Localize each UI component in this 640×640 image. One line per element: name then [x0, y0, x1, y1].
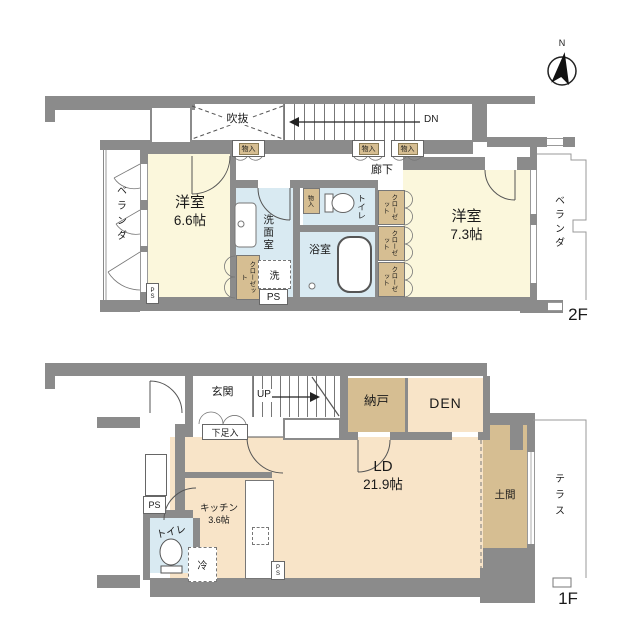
- ps-label: PS: [148, 500, 160, 510]
- terrace-label: テラス: [551, 462, 564, 532]
- toilet-fixture-1f: [160, 539, 182, 573]
- ps-chip-kitchen: PS: [271, 561, 285, 580]
- door-arc-bedroom-6-6: [192, 156, 230, 194]
- door-arc-ld: [247, 437, 283, 473]
- compass-icon: [548, 51, 576, 85]
- storage-niche-1: 物入: [232, 140, 265, 157]
- doma-label: 土間: [483, 489, 527, 502]
- ps-box-2f: PS: [259, 289, 288, 305]
- floor2-label: 2F: [558, 304, 598, 325]
- closet-left-label: クローゼット: [238, 258, 255, 296]
- ps-label: PS: [150, 288, 156, 300]
- washer-label: 洗: [270, 267, 280, 282]
- basin-niche: [145, 454, 167, 496]
- fridge-label: 冷: [198, 557, 208, 572]
- bedroom-7-3-label: 洋室 7.3帖: [403, 208, 530, 244]
- room-name: キッチン: [194, 503, 244, 515]
- ps-label: PS: [275, 565, 281, 577]
- kitchen-label: キッチン 3.6帖: [194, 503, 244, 526]
- floor-plan: 物入 物入 物入 PS PS 洗 吹抜 DN 廊下 洋室 6.6帖 洋室 7.3…: [0, 0, 640, 640]
- storage-niche-2: 物入: [352, 140, 385, 157]
- fridge-box: 冷: [188, 547, 217, 582]
- closet-label: クローゼット: [380, 228, 397, 258]
- shoe-storage-box: 下足入: [202, 424, 248, 440]
- toilet-2f-label: トイレ: [356, 189, 367, 224]
- room-name: LD: [323, 458, 443, 477]
- corridor-label: 廊下: [352, 164, 412, 178]
- storage-niche-label: 物入: [398, 143, 418, 155]
- door-arc-bedroom-7-3: [485, 170, 515, 200]
- vanity-sink-2f: [235, 203, 256, 247]
- room-size: 6.6帖: [148, 213, 232, 230]
- floor1-label: 1F: [548, 588, 588, 609]
- closet-label: クローゼット: [380, 192, 397, 222]
- storage-niche-label: 物入: [359, 143, 379, 155]
- room-name: 洋室: [403, 208, 530, 227]
- compass-north-label: N: [554, 38, 570, 49]
- bathtub: [338, 237, 371, 292]
- storage-niche-3: 物入: [391, 140, 424, 157]
- bathroom-label: 浴室: [300, 244, 340, 258]
- shoe-storage-label: 下足入: [211, 426, 238, 439]
- toilet-fixture-2f: [325, 194, 354, 213]
- room-name: 洋室: [148, 194, 232, 213]
- closet-label: クローゼット: [380, 264, 397, 294]
- bedroom-6-6-label: 洋室 6.6帖: [148, 194, 232, 230]
- stairs-dn-label: DN: [424, 114, 438, 127]
- stairs-up-label: UP: [256, 389, 272, 402]
- room-size: 7.3帖: [403, 227, 530, 244]
- ps-chip-2f-left: PS: [146, 283, 159, 304]
- room-size: 3.6帖: [194, 515, 244, 526]
- door-arc-toilet-1f: [164, 488, 196, 520]
- den-label: DEN: [408, 395, 483, 413]
- kitchen-dashed-unit: [252, 527, 269, 545]
- storage-room-label: 納戸: [348, 394, 405, 410]
- plan-linework: [0, 0, 640, 640]
- stairs-dn-arrow: [289, 117, 420, 127]
- veranda-left-label: ベランダ: [113, 170, 126, 260]
- understair-void-box: [283, 418, 341, 440]
- washroom-label: 洗面室: [261, 198, 274, 268]
- ps-label: PS: [267, 292, 280, 303]
- room-size: 21.9帖: [323, 477, 443, 494]
- terrace-step: [553, 578, 571, 587]
- veranda-right-label: ベランダ: [551, 183, 564, 263]
- ld-label: LD 21.9帖: [323, 458, 443, 494]
- bath-drain: [309, 283, 315, 289]
- storage-niche-label: 物入: [239, 143, 259, 155]
- shoe-storage-doors: [199, 412, 246, 424]
- ps-box-1f: PS: [143, 496, 166, 514]
- void-label: 吹抜: [192, 113, 283, 127]
- stairs-up-arrow: [272, 377, 339, 416]
- entrance-label: 玄関: [193, 386, 252, 400]
- door-arc-front: [150, 381, 182, 413]
- storage-small-label: 物入: [305, 190, 313, 211]
